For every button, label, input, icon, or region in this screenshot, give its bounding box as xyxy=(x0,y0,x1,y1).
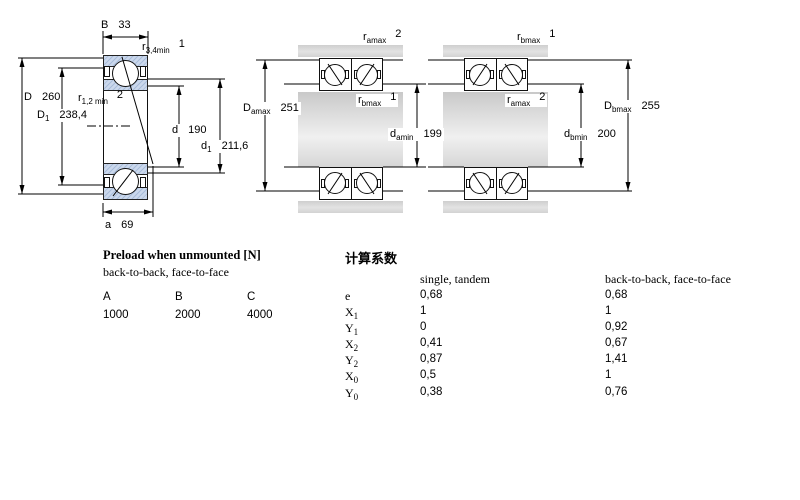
dim-value: 200 xyxy=(597,128,615,140)
preload-value: 2000 xyxy=(175,309,201,321)
factor-value-single: 0,38 xyxy=(420,386,442,398)
factor-symbol: Y2 xyxy=(345,353,358,368)
dim-value: 211,6 xyxy=(222,140,249,152)
factor-value-paired: 0,68 xyxy=(605,289,627,301)
preload-col-header: C xyxy=(247,291,255,303)
factor-value-paired: 0,76 xyxy=(605,386,627,398)
dim-label-rbmax-mid: rbmax1 xyxy=(356,94,398,107)
dim-label-Damax: Damax251 xyxy=(241,102,301,115)
dim-value: 238,4 xyxy=(59,109,87,121)
factor-value-single: 0,87 xyxy=(420,353,442,365)
factor-value-paired: 1 xyxy=(605,369,611,381)
dim-subscript: 1 xyxy=(45,114,49,123)
dim-symbol: D xyxy=(243,102,251,114)
dim-subscript: amax xyxy=(251,107,271,116)
dim-symbol: B xyxy=(101,19,108,31)
dim-symbol: d xyxy=(172,124,178,136)
factor-value-single: 0,41 xyxy=(420,337,442,349)
dim-subscript: bmax xyxy=(362,99,382,108)
dim-label-rbmax-top: rbmax1 xyxy=(517,31,555,44)
dim-label-ramax-top: ramax2 xyxy=(363,31,401,44)
dim-subscript: bmin xyxy=(570,133,587,142)
dim-label-r34min: r3,4min1 xyxy=(142,41,185,54)
factor-value-paired: 1,41 xyxy=(605,353,627,365)
dim-label-B: B33 xyxy=(101,19,131,32)
dim-label-r12min: r1,2 min2 xyxy=(78,92,123,105)
factors-title: 计算系数 xyxy=(345,248,397,267)
dim-label-dbmin: dbmin200 xyxy=(562,128,618,141)
dim-value: 255 xyxy=(642,100,660,112)
dim-symbol: D xyxy=(24,91,32,103)
dim-subscript: 3,4min xyxy=(146,46,170,55)
footnote-marker: 2 xyxy=(395,28,401,40)
dim-label-d1: d1211,6 xyxy=(199,140,250,153)
dim-label-d: d190 xyxy=(170,124,208,137)
dim-symbol: D xyxy=(604,100,612,112)
dim-subscript: amax xyxy=(367,36,387,45)
dim-subscript: bmax xyxy=(521,36,541,45)
factor-value-single: 1 xyxy=(420,305,426,317)
dim-value: 199 xyxy=(423,128,441,140)
dim-symbol: a xyxy=(105,219,111,231)
preload-subtitle: back-to-back, face-to-face xyxy=(103,265,229,280)
footnote-marker: 2 xyxy=(539,91,545,103)
dim-subscript: bmax xyxy=(612,105,632,114)
preload-table: Preload when unmounted [N] back-to-back,… xyxy=(103,248,333,328)
factor-symbol: X1 xyxy=(345,305,358,320)
preload-col-header: A xyxy=(103,291,111,303)
footnote-marker: 2 xyxy=(117,89,123,101)
factor-value-single: 0 xyxy=(420,321,426,333)
factor-symbol: Y0 xyxy=(345,386,358,401)
factor-value-paired: 0,92 xyxy=(605,321,627,333)
dim-subscript: amin xyxy=(396,133,413,142)
dim-label-damin: damin199 xyxy=(388,128,444,141)
dim-subscript: 1 xyxy=(207,145,211,154)
preload-title: Preload when unmounted [N] xyxy=(103,248,261,263)
factor-symbol: X0 xyxy=(345,369,358,384)
dim-value: 33 xyxy=(118,19,130,31)
dim-value: 69 xyxy=(121,219,133,231)
dim-symbol: D xyxy=(37,109,45,121)
dim-value: 260 xyxy=(42,91,60,103)
dim-label-a: a69 xyxy=(105,219,133,232)
footnote-marker: 1 xyxy=(179,38,185,50)
dim-value: 251 xyxy=(281,102,299,114)
dim-label-D1: D1238,4 xyxy=(35,109,89,122)
calculation-factors-table: 计算系数 single, tandem back-to-back, face-t… xyxy=(345,248,785,408)
dim-label-Dbmax: Dbmax255 xyxy=(602,100,662,113)
dim-label-ramax-mid: ramax2 xyxy=(505,94,547,107)
dim-subscript: 1,2 min xyxy=(82,97,108,106)
factor-value-single: 0,68 xyxy=(420,289,442,301)
factor-value-paired: 0,67 xyxy=(605,337,627,349)
factor-value-single: 0,5 xyxy=(420,369,436,381)
bearing-datasheet-page: B33 r3,4min1 r1,2 min2 D260 D1238,4 d190… xyxy=(0,0,800,500)
footnote-marker: 1 xyxy=(390,91,396,103)
preload-value: 1000 xyxy=(103,309,129,321)
factor-symbol: Y1 xyxy=(345,321,358,336)
factor-value-paired: 1 xyxy=(605,305,611,317)
dim-value: 190 xyxy=(188,124,206,136)
dim-label-D: D260 xyxy=(24,91,60,104)
factors-col-header-single: single, tandem xyxy=(420,272,490,287)
factors-col-header-paired: back-to-back, face-to-face xyxy=(605,272,731,287)
factor-symbol: X2 xyxy=(345,337,358,352)
factor-symbol: e xyxy=(345,289,350,304)
dim-subscript: amax xyxy=(511,99,531,108)
footnote-marker: 1 xyxy=(549,28,555,40)
preload-col-header: B xyxy=(175,291,183,303)
preload-value: 4000 xyxy=(247,309,273,321)
